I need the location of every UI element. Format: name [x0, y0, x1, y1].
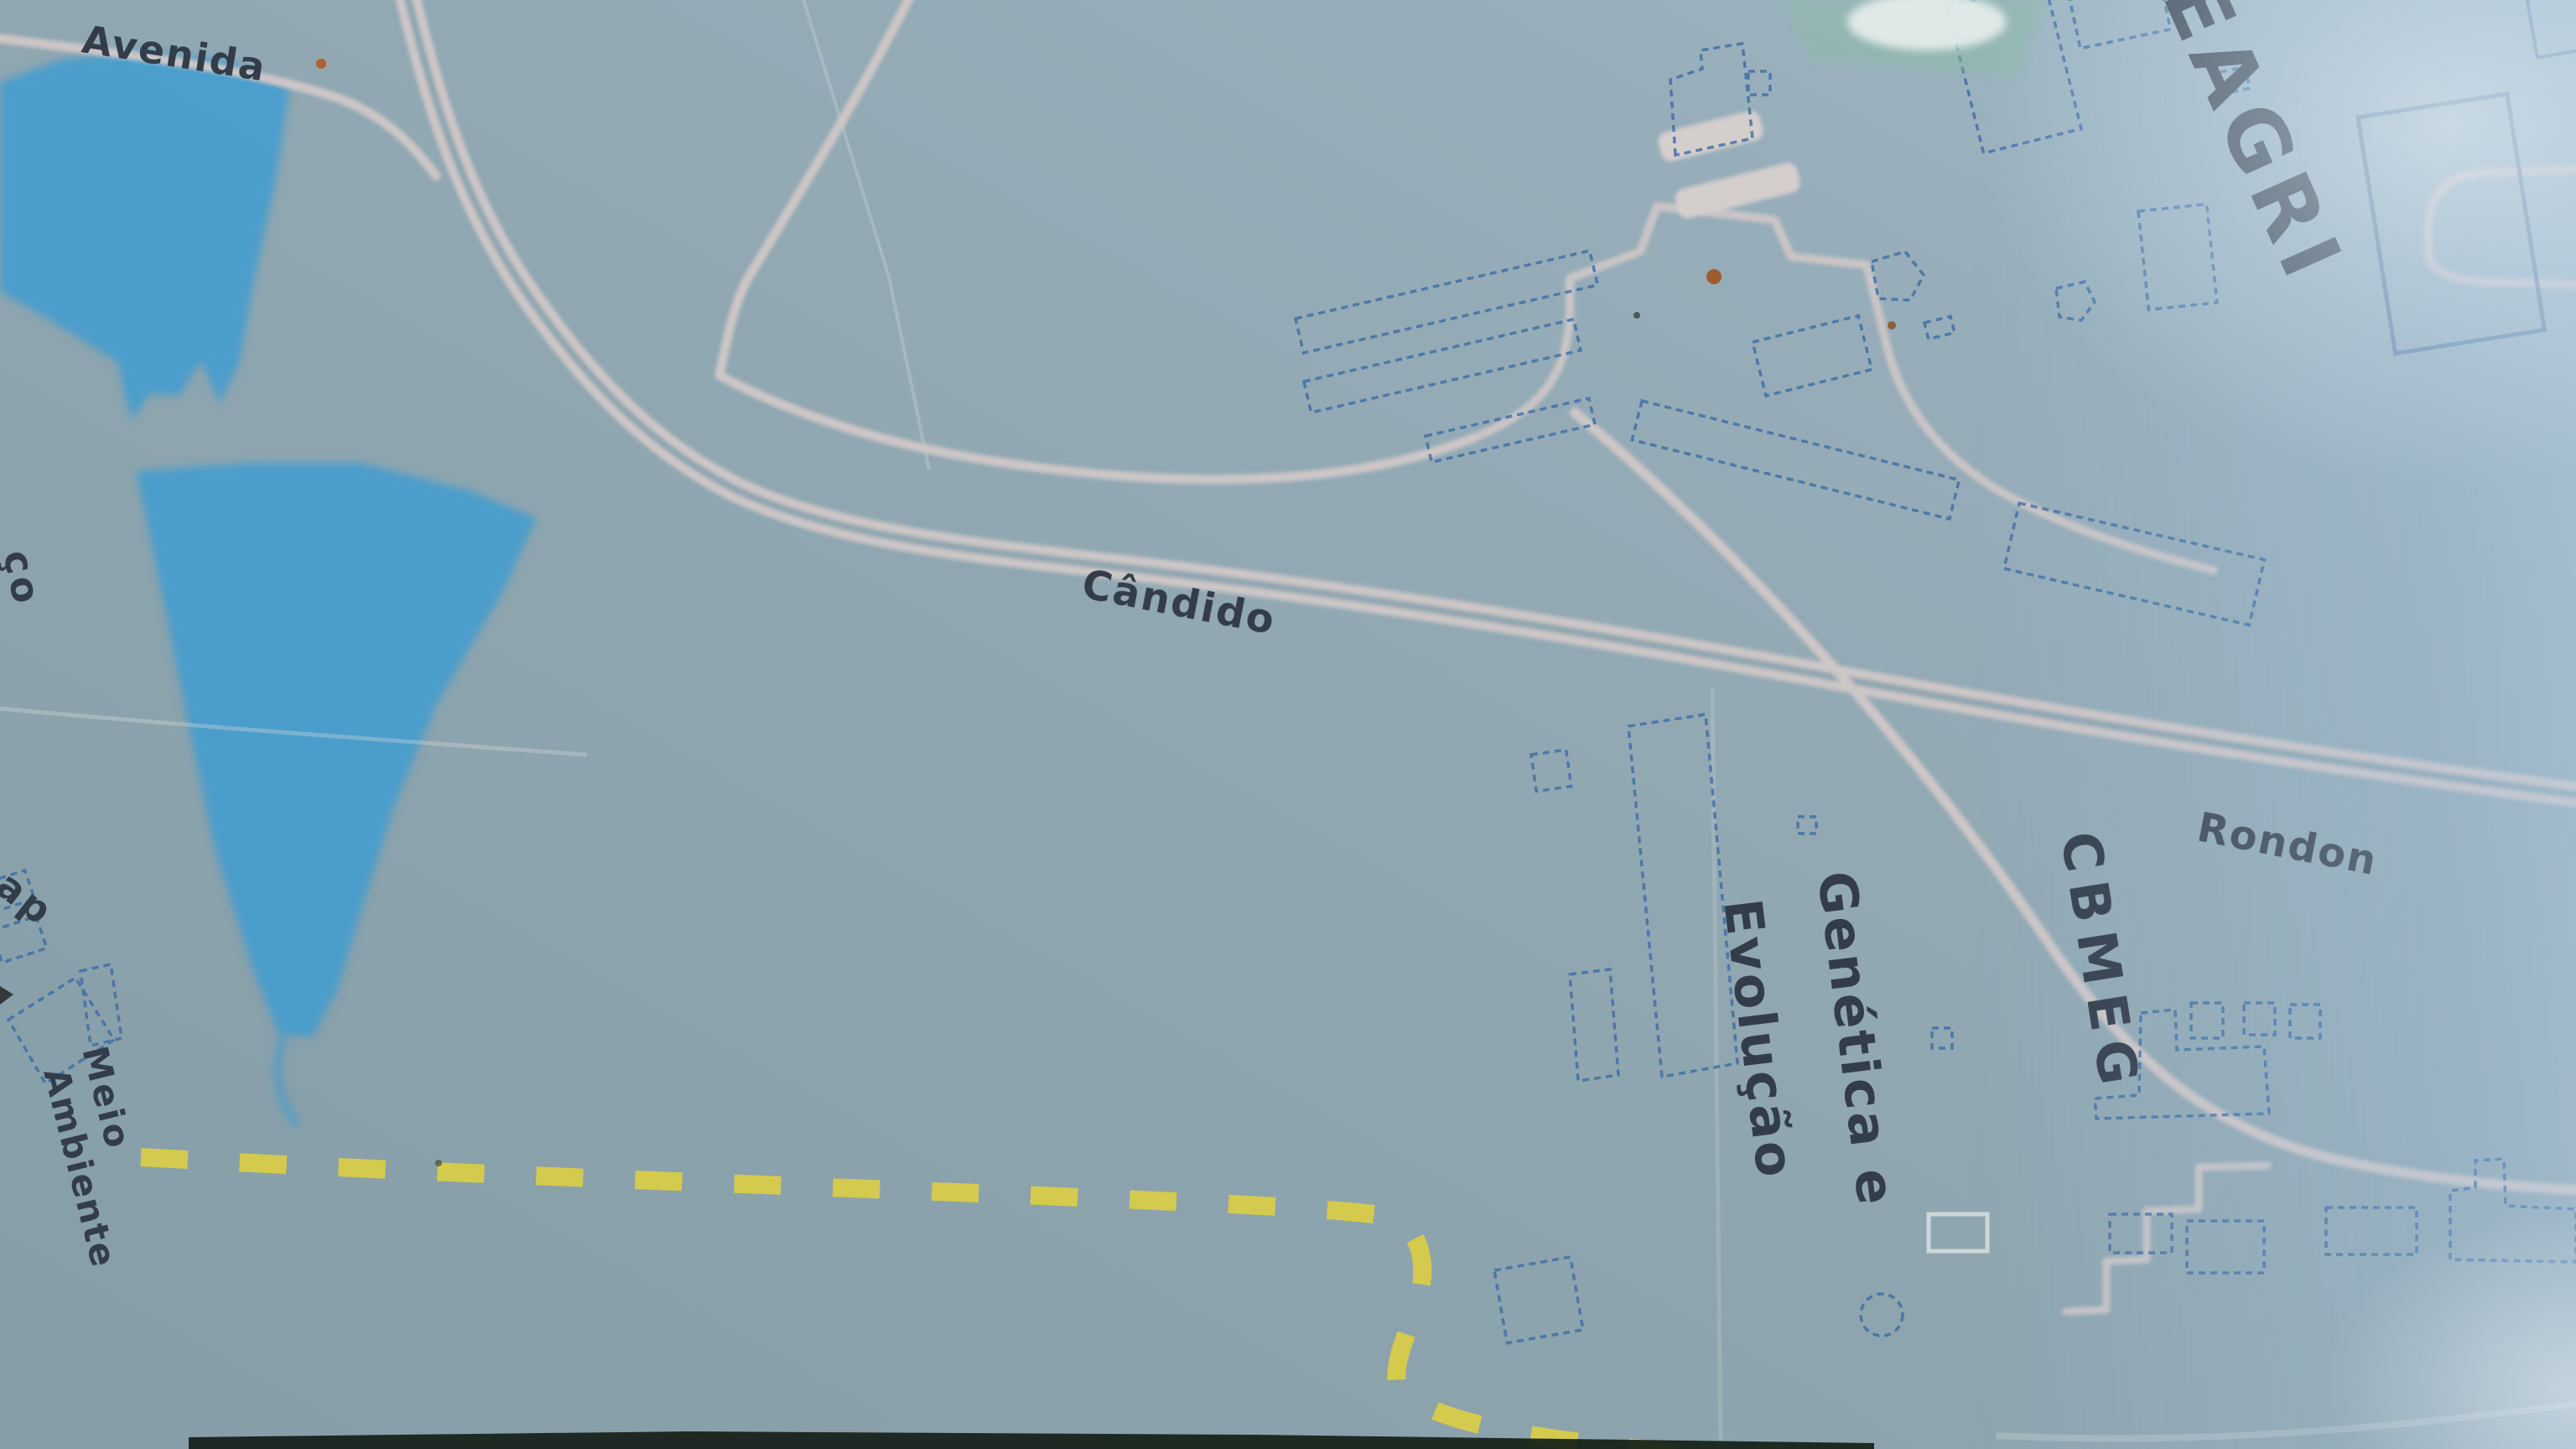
rust-spot — [316, 59, 326, 69]
rust-spot — [1888, 321, 1896, 330]
campus-map-photo: Avenida Cândido Rondon EAGRI CBMEG Genét… — [0, 0, 2576, 1449]
rust-spot — [1706, 269, 1722, 284]
dark-speck — [1633, 312, 1640, 319]
map-canvas: Avenida Cândido Rondon EAGRI CBMEG Genét… — [0, 0, 2576, 1449]
dark-speck — [435, 1160, 442, 1166]
